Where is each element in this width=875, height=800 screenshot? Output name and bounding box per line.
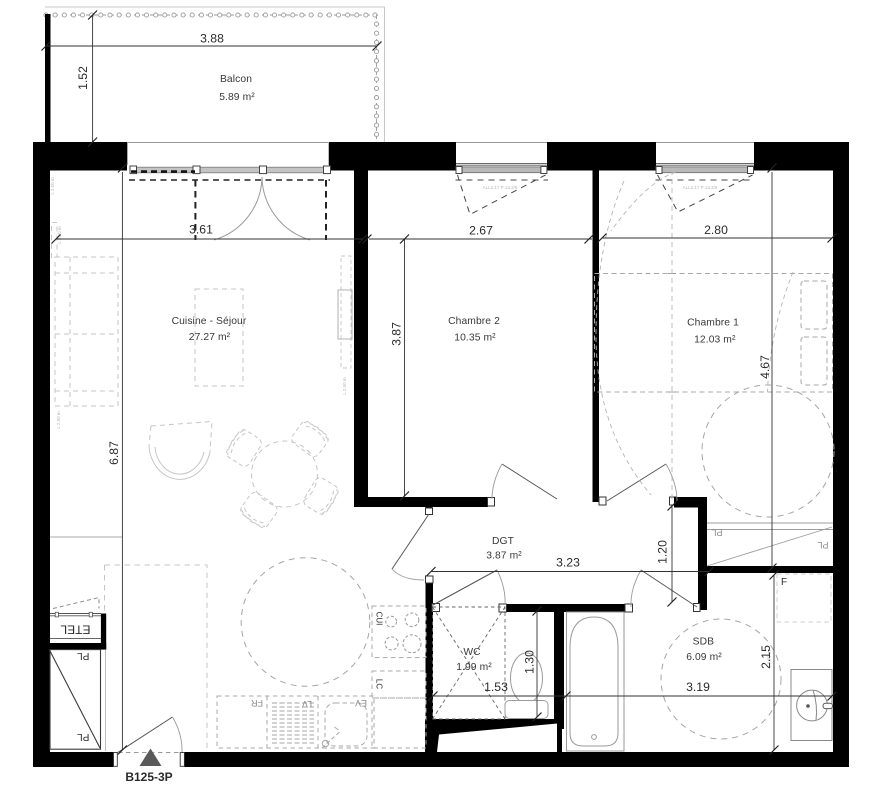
svg-text:3.61: 3.61 [189,223,213,237]
svg-text:FR: FR [251,698,263,708]
svg-text:L 2.50 m: L 2.50 m [50,177,55,195]
svg-text:2.80: 2.80 [704,223,728,237]
svg-text:Balcon: Balcon [220,74,252,85]
svg-text:EV: EV [355,698,367,708]
svg-text:6.09 m²: 6.09 m² [686,652,722,663]
svg-text:Cuisine - Séjour: Cuisine - Séjour [172,316,247,327]
svg-text:3.87 m²: 3.87 m² [486,551,522,562]
svg-text:2.67: 2.67 [469,224,493,238]
svg-text:F: F [781,577,787,588]
svg-text:CUI: CUI [375,612,384,626]
svg-text:1.52: 1.52 [76,66,90,90]
svg-text:1.20: 1.20 [656,540,670,564]
svg-text:3.23: 3.23 [556,556,580,570]
svg-text:Chambre 1: Chambre 1 [687,318,739,329]
svg-text:ETEL: ETEL [60,623,90,637]
svg-text:ALL2.17 P 13.2/5: ALL2.17 P 13.2/5 [683,185,718,190]
svg-text:12.03 m²: 12.03 m² [694,335,736,346]
svg-text:1.30: 1.30 [523,650,537,674]
svg-text:PL: PL [817,540,828,550]
svg-text:DGT: DGT [492,536,515,547]
svg-text:3.88: 3.88 [200,32,224,46]
svg-text:L 2.50 m: L 2.50 m [56,411,61,429]
svg-text:PL: PL [711,528,722,538]
svg-text:SDB: SDB [693,637,715,648]
svg-text:ALL2.17 P 13.2/5: ALL2.17 P 13.2/5 [483,185,518,190]
svg-text:27.27 m²: 27.27 m² [189,332,231,343]
svg-text:3.19: 3.19 [686,680,710,694]
svg-text:4.67: 4.67 [758,355,772,379]
svg-text:LC: LC [375,679,384,689]
svg-text:1.99 m²: 1.99 m² [456,662,492,673]
svg-text:Chambre 2: Chambre 2 [448,316,500,327]
svg-text:6.87: 6.87 [107,441,121,465]
svg-text:3.87: 3.87 [390,322,404,346]
svg-text:1.53: 1.53 [484,680,508,694]
svg-text:LV: LV [302,699,312,709]
svg-text:5.89 m²: 5.89 m² [219,92,255,103]
svg-text:10.35 m²: 10.35 m² [454,333,496,344]
svg-text:PL: PL [77,650,90,661]
svg-text:2.15: 2.15 [759,645,773,669]
svg-text:PL: PL [77,731,90,742]
svg-text:B125-3P: B125-3P [125,770,172,784]
svg-text:WC: WC [463,647,481,658]
svg-text:L 2.50 m: L 2.50 m [342,377,347,395]
